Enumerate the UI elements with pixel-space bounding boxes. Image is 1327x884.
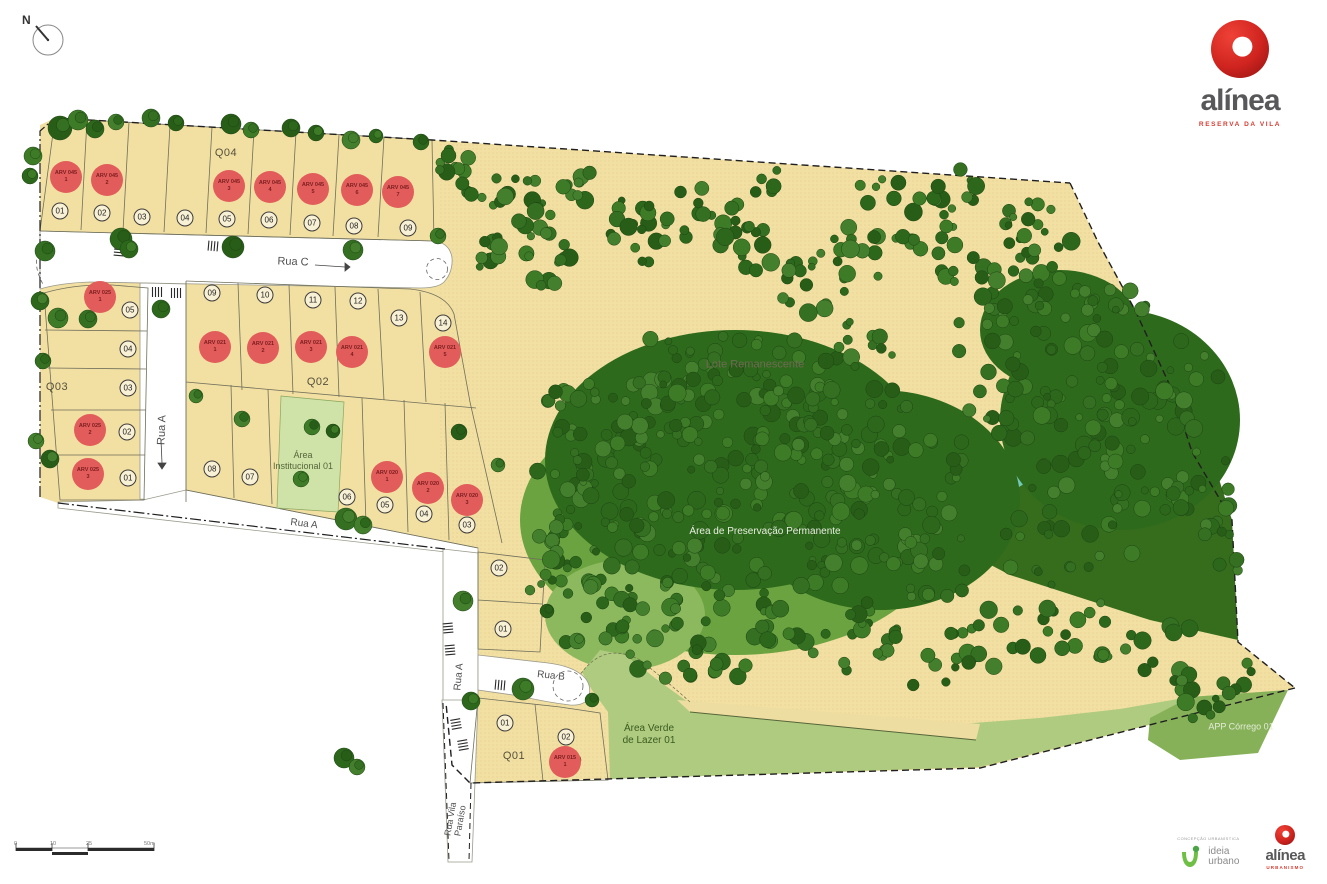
scale-tick-label: 0 <box>14 841 17 847</box>
brand-tagline: RESERVA DA VILA <box>1181 121 1299 128</box>
footer-brand-name: alínea <box>1265 847 1305 864</box>
brand-name: alínea <box>1181 84 1299 118</box>
compass: N <box>18 10 70 69</box>
footer-partner-name-line: urbano <box>1208 857 1239 868</box>
footer-partner-name: ideia urbano <box>1208 847 1239 868</box>
footer-logos: CONCEPÇÃO URBANÍSTICA ideia urbano alíne… <box>1177 825 1305 870</box>
footer-brand-logo: alínea URBANISMO <box>1265 825 1305 870</box>
scale-tick-label: 10 <box>50 841 56 847</box>
institutional-area <box>277 396 344 512</box>
road-rua-a-lower <box>443 549 478 701</box>
footer-partner-logo: CONCEPÇÃO URBANÍSTICA ideia urbano <box>1177 836 1239 870</box>
site-plan-canvas: Q04Q03Q02Q01Rua CRua ARua ARua ARua BRua… <box>0 0 1327 884</box>
scale-bar: 0 10 25 50m <box>14 838 174 867</box>
compass-label: N <box>22 13 31 27</box>
brand-logo: alínea RESERVA DA VILA <box>1181 20 1299 128</box>
site-plan-drawing <box>0 0 1327 884</box>
footer-brand-tagline: URBANISMO <box>1265 865 1305 870</box>
footer-brand-mark-icon <box>1275 825 1295 845</box>
footer-partner-caption: CONCEPÇÃO URBANÍSTICA <box>1177 836 1239 841</box>
scale-tick-label: 50m <box>144 841 155 847</box>
cul-de-sac-rua-b <box>553 671 583 701</box>
brand-mark-icon <box>1211 20 1269 78</box>
scale-tick-label: 25 <box>86 841 92 847</box>
cul-de-sac-rua-c <box>427 259 448 280</box>
ideia-urbano-icon <box>1177 844 1203 870</box>
